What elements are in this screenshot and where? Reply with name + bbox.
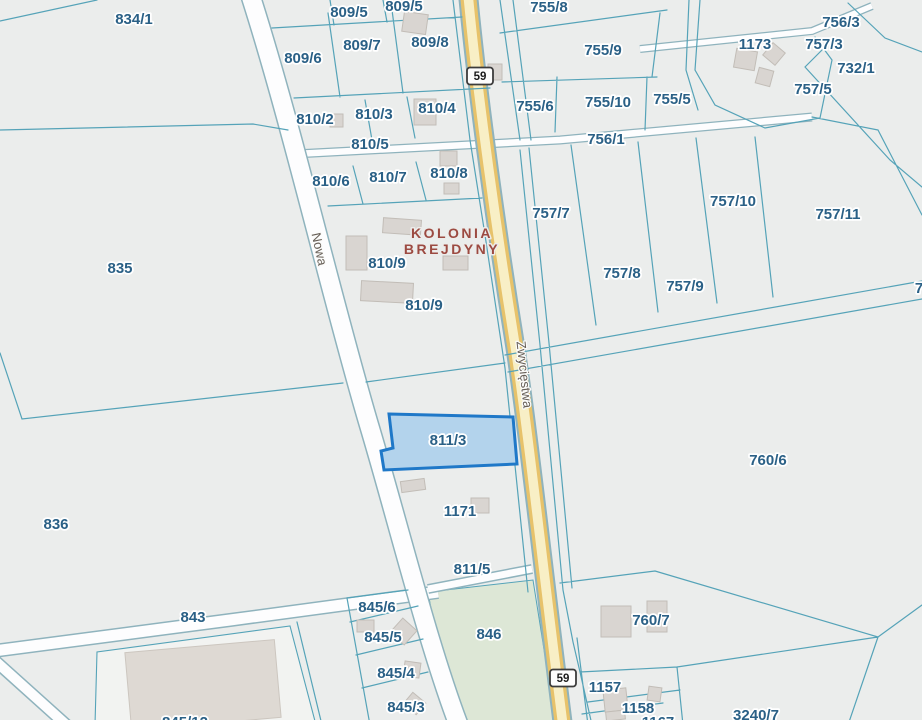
parcel-label-846: 846 <box>476 626 501 643</box>
parcel-label-810-8: 810/8 <box>430 165 468 182</box>
large-farm-building <box>125 640 281 720</box>
parcel-label-809-5: 809/5 <box>330 4 368 21</box>
parcel-label-809-5: 809/5 <box>385 0 423 15</box>
parcel-label-845-6: 845/6 <box>358 599 396 616</box>
parcel-label-809-8: 809/8 <box>411 34 449 51</box>
parcel-label-757-8: 757/8 <box>603 265 641 282</box>
parcel-label-1167: 1167 <box>642 714 675 720</box>
route-shield-number: 59 <box>474 71 487 83</box>
parcel-label-810-4: 810/4 <box>418 100 456 117</box>
route-shield-59: 59 <box>467 68 493 85</box>
parcel-label-810-9: 810/9 <box>368 255 406 272</box>
parcel-label-1157: 1157 <box>589 679 622 696</box>
parcel-label-756-1: 756/1 <box>587 131 625 148</box>
parcel-label-757-11: 757/11 <box>815 206 860 223</box>
parcel-label-810-7: 810/7 <box>369 169 407 186</box>
parcel-label-755-6: 755/6 <box>516 98 554 115</box>
parcel-label-836: 836 <box>43 516 68 533</box>
parcel-label-1173: 1173 <box>739 36 772 53</box>
building-footprint <box>444 183 459 194</box>
parcel-label-757-7: 757/7 <box>532 205 570 222</box>
parcel-label-811-5: 811/5 <box>454 561 491 578</box>
parcel-label-810-2: 810/2 <box>296 111 334 128</box>
parcel-label-810-9: 810/9 <box>405 297 443 314</box>
parcel-label-760-7: 760/7 <box>632 612 670 629</box>
parcel-label-3240-7: 3240/7 <box>733 707 779 720</box>
building-footprint <box>443 256 468 270</box>
parcel-label-845-3: 845/3 <box>387 699 425 716</box>
parcel-label-835: 835 <box>107 260 132 277</box>
parcel-label-809-6: 809/6 <box>284 50 322 67</box>
map-viewport[interactable]: 834/1809/5809/5755/8756/31173757/3732/17… <box>0 0 922 720</box>
route-shield-number: 59 <box>557 673 570 685</box>
parcel-label-834-1: 834/1 <box>115 11 153 28</box>
parcel-label-757-3: 757/3 <box>805 36 843 53</box>
parcel-label-809-7: 809/7 <box>343 37 381 54</box>
parcel-label-760-6: 760/6 <box>749 452 787 469</box>
parcel-label-845-12: 845/12 <box>162 714 208 720</box>
parcel-label-811-3: 811/3 <box>430 432 467 449</box>
parcel-label-755-10: 755/10 <box>585 94 631 111</box>
parcel-label-810-5: 810/5 <box>351 136 389 153</box>
parcel-label-843: 843 <box>180 609 205 626</box>
parcel-label-845-4: 845/4 <box>377 665 415 682</box>
parcel-label-810-6: 810/6 <box>312 173 350 190</box>
parcel-label-810-3: 810/3 <box>355 106 393 123</box>
parcel-label-757-5: 757/5 <box>794 81 832 98</box>
parcel-label-756-3: 756/3 <box>822 14 860 31</box>
building-footprint <box>601 606 631 637</box>
parcel-label-845-5: 845/5 <box>364 629 402 646</box>
parcel-label-755-8: 755/8 <box>530 0 568 16</box>
parcel-label-755-9: 755/9 <box>584 42 622 59</box>
parcel-label-757-9: 757/9 <box>666 278 704 295</box>
parcel-label-1171: 1171 <box>444 503 477 520</box>
locality-label: BREJDYNY <box>404 241 500 257</box>
route-shield-59: 59 <box>550 670 576 687</box>
parcel-label-755-5: 755/5 <box>653 91 691 108</box>
parcel-label-757-10: 757/10 <box>710 193 756 210</box>
parcel-label-732-1: 732/1 <box>837 60 875 77</box>
parcel-label-7: 7 <box>915 280 922 297</box>
cadastral-map-canvas[interactable]: 834/1809/5809/5755/8756/31173757/3732/17… <box>0 0 922 720</box>
building-footprint <box>440 151 457 166</box>
building-footprint <box>346 236 367 270</box>
locality-label: KOLONIA <box>411 225 493 241</box>
